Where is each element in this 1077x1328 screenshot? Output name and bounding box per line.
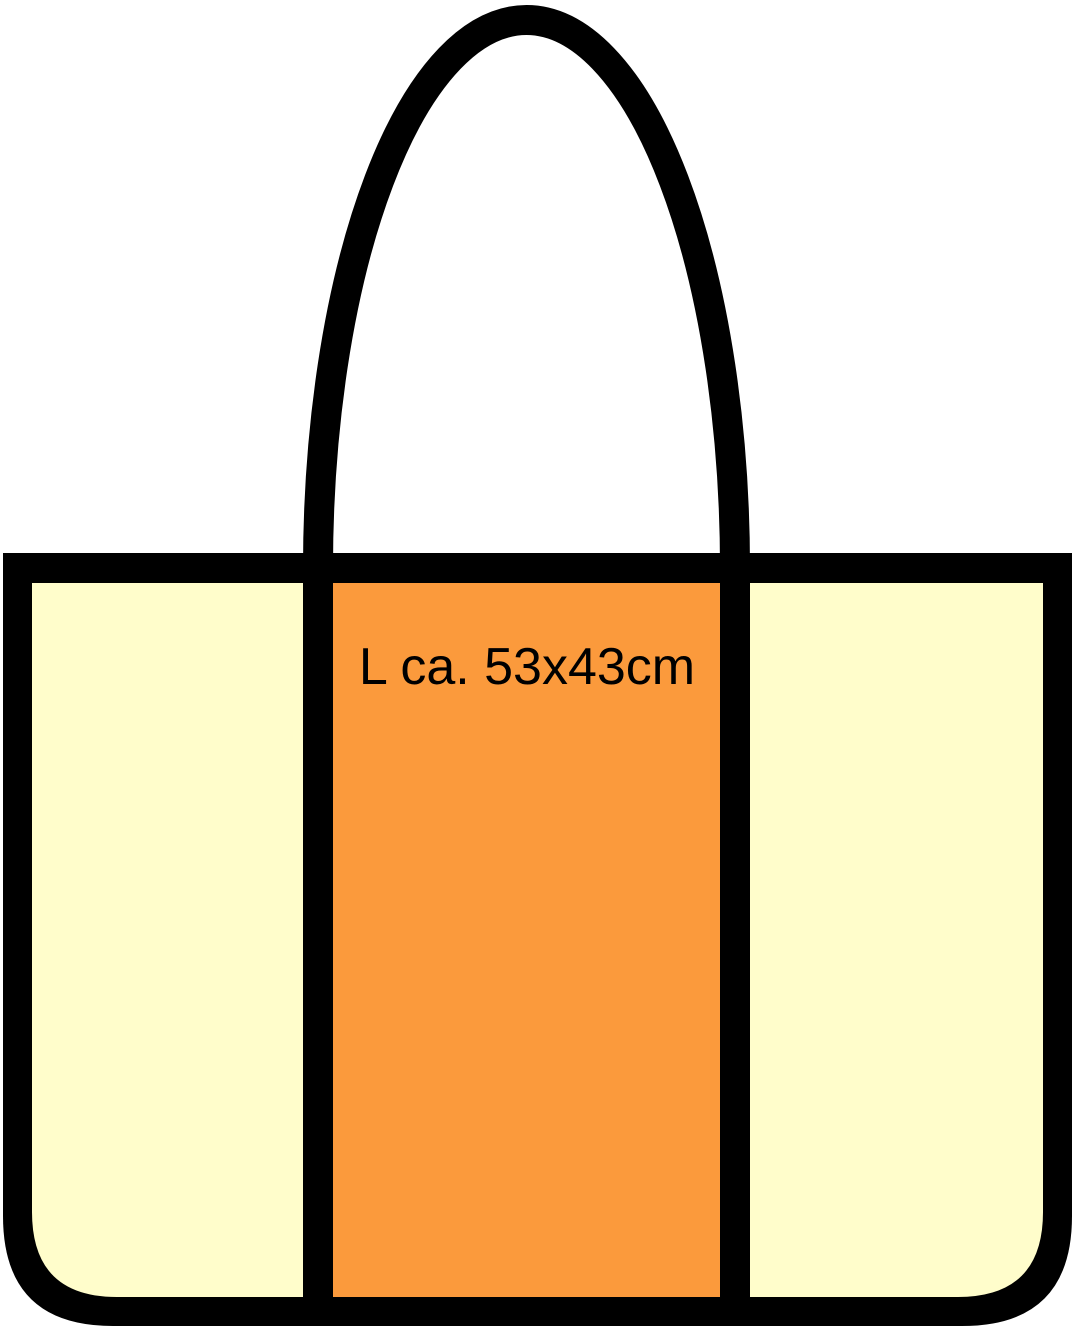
bag-illustration: L ca. 53x43cm [0,0,1077,1328]
size-label: L ca. 53x43cm [359,638,695,696]
bag-right-panel [750,583,1043,1297]
bag-left-panel [32,583,303,1297]
bag-handle [318,20,735,568]
